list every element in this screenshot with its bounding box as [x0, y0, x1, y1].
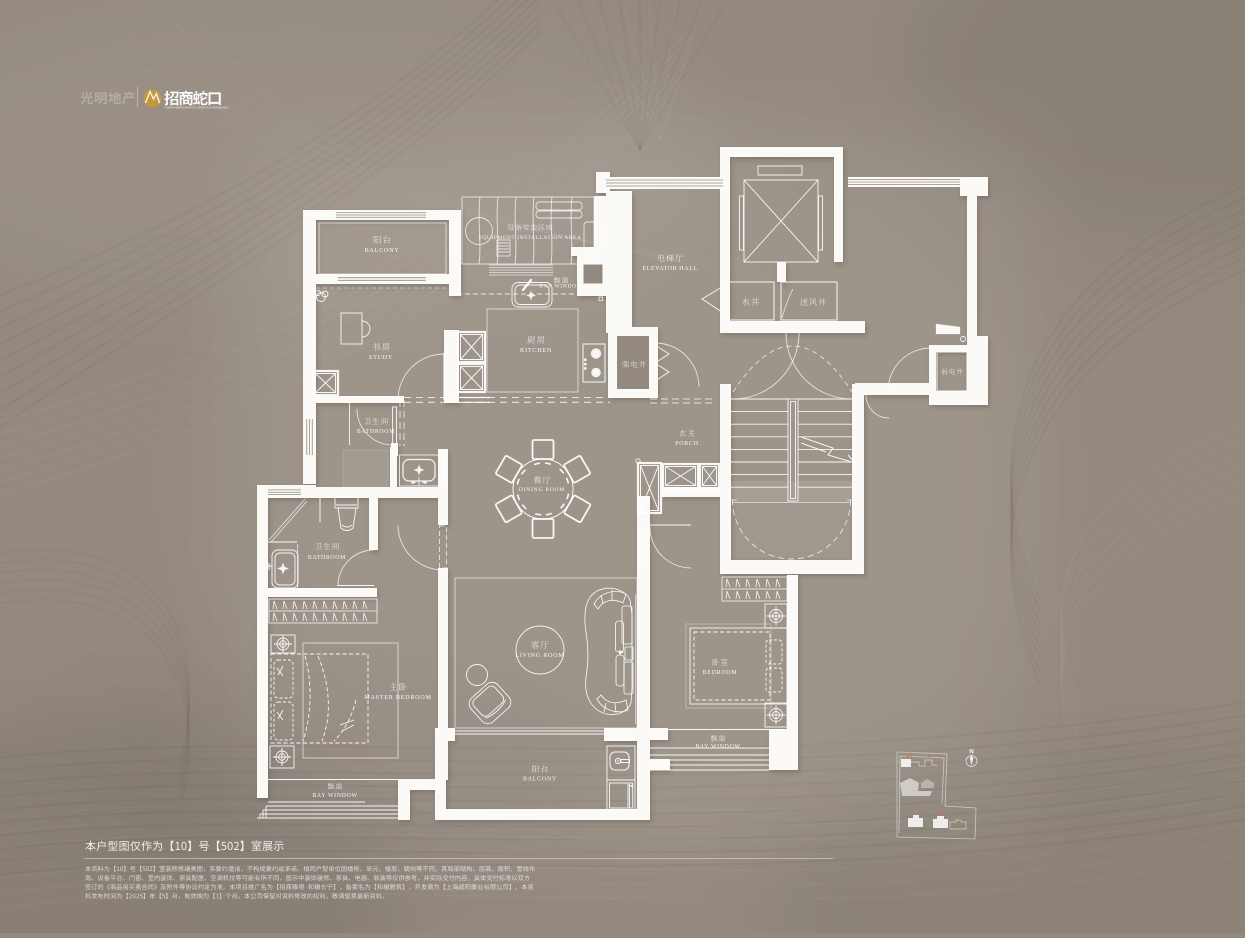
svg-text:CHINA MERCHANTS SHEKOU HOLDING: CHINA MERCHANTS SHEKOU HOLDINGS — [165, 106, 229, 110]
svg-text:MASTER BEDROOM: MASTER BEDROOM — [364, 694, 431, 701]
svg-text:BAY WINDOW: BAY WINDOW — [312, 793, 357, 799]
svg-text:ELEVATOR HALL: ELEVATOR HALL — [642, 265, 697, 272]
svg-text:BALCONY: BALCONY — [365, 247, 400, 254]
svg-text:10: 10 — [905, 752, 913, 759]
svg-text:N: N — [969, 750, 973, 756]
svg-text:BAY WINDOW: BAY WINDOW — [695, 744, 740, 750]
svg-text:1: 1 — [958, 815, 962, 822]
svg-text:9: 9 — [927, 753, 931, 760]
svg-text:2: 2 — [940, 811, 944, 818]
svg-text:LIVING ROOM: LIVING ROOM — [515, 652, 564, 659]
svg-text:DINING ROOM: DINING ROOM — [519, 487, 565, 493]
svg-text:BEDROOM: BEDROOM — [703, 670, 738, 676]
svg-text:EQUIPMENT INSTALLATION AREA: EQUIPMENT INSTALLATION AREA — [478, 235, 581, 241]
svg-text:STUDY: STUDY — [369, 354, 393, 361]
svg-text:PORCH: PORCH — [675, 441, 699, 447]
svg-text:KITCHEN: KITCHEN — [520, 347, 552, 354]
svg-text:BATHROOM: BATHROOM — [308, 555, 346, 561]
svg-text:BALCONY: BALCONY — [523, 777, 557, 783]
svg-text:5: 5 — [914, 810, 918, 817]
svg-text:BATHROOM: BATHROOM — [357, 429, 395, 435]
svg-text:BAY WINDOW: BAY WINDOW — [539, 284, 582, 290]
